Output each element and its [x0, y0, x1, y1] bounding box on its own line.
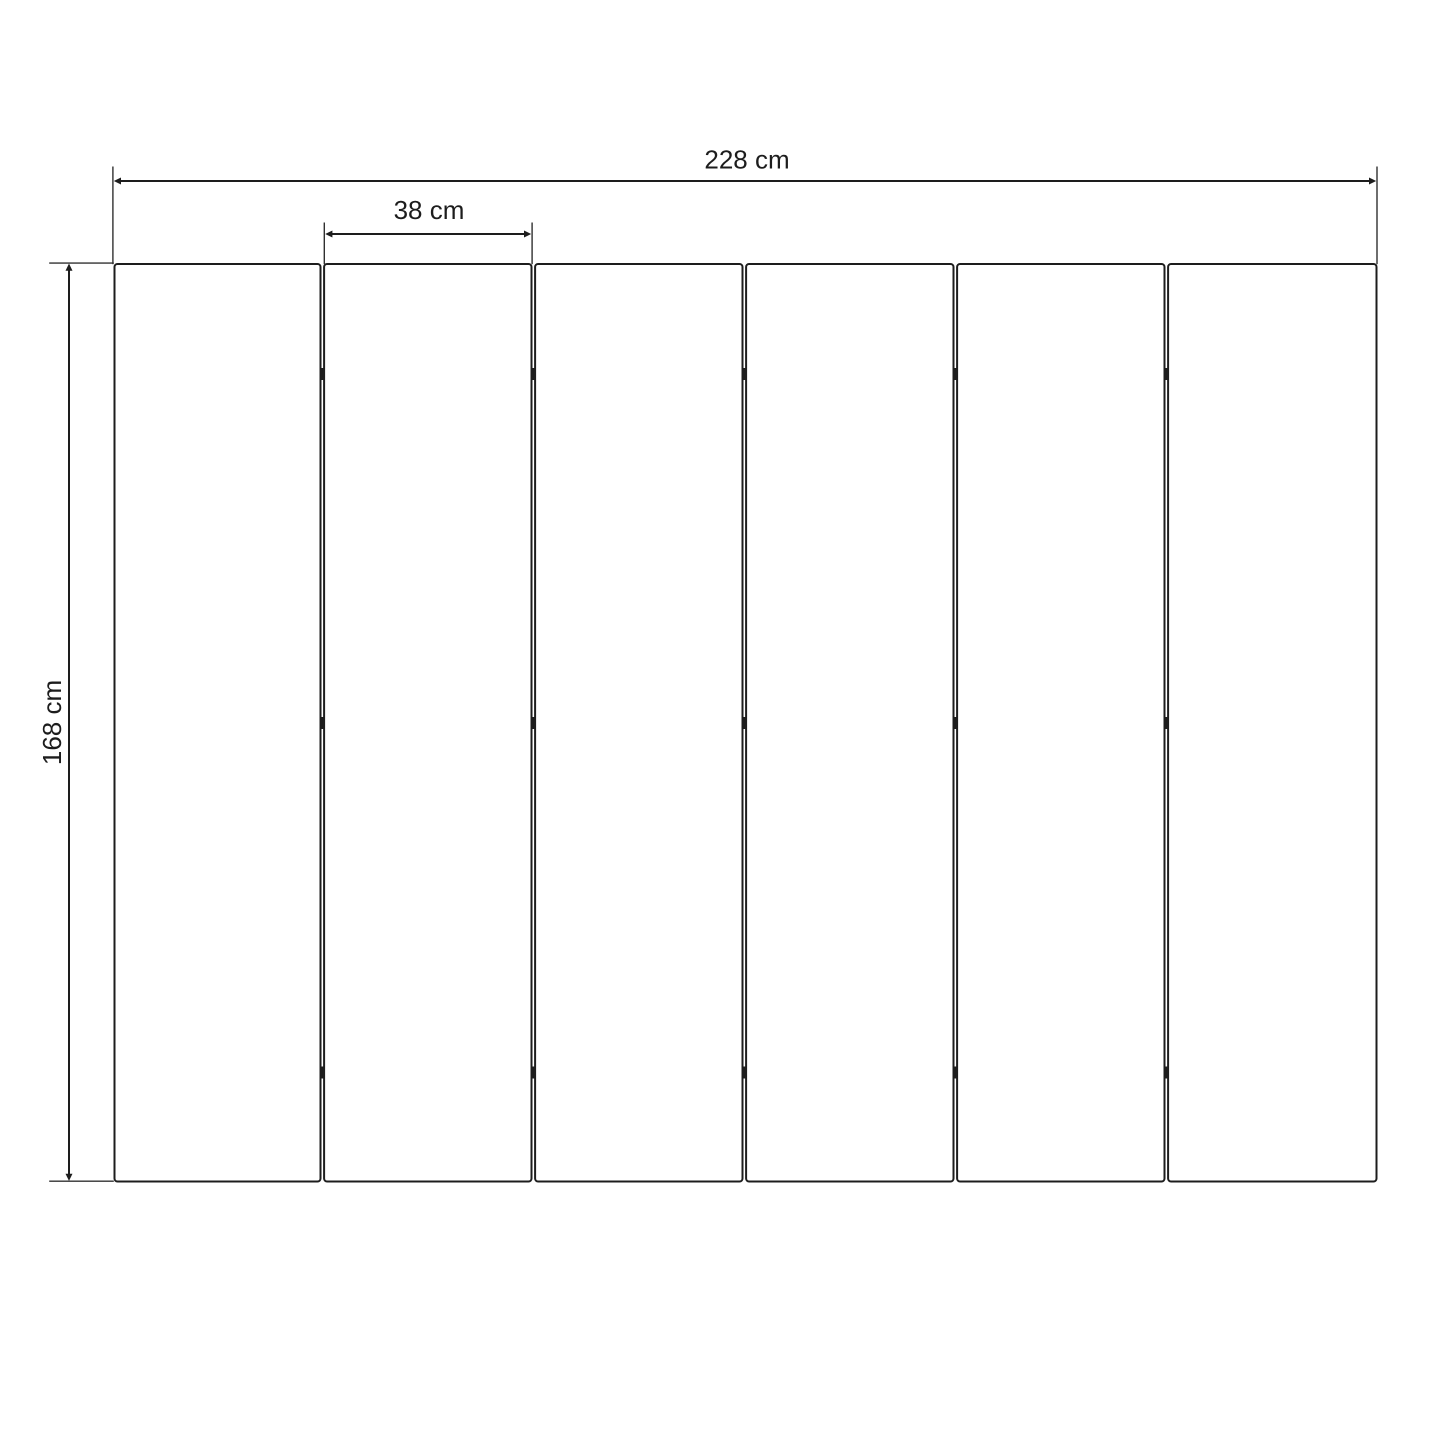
svg-text:38 cm: 38 cm — [394, 195, 465, 225]
svg-text:228 cm: 228 cm — [704, 145, 789, 175]
svg-text:168 cm: 168 cm — [37, 680, 67, 765]
